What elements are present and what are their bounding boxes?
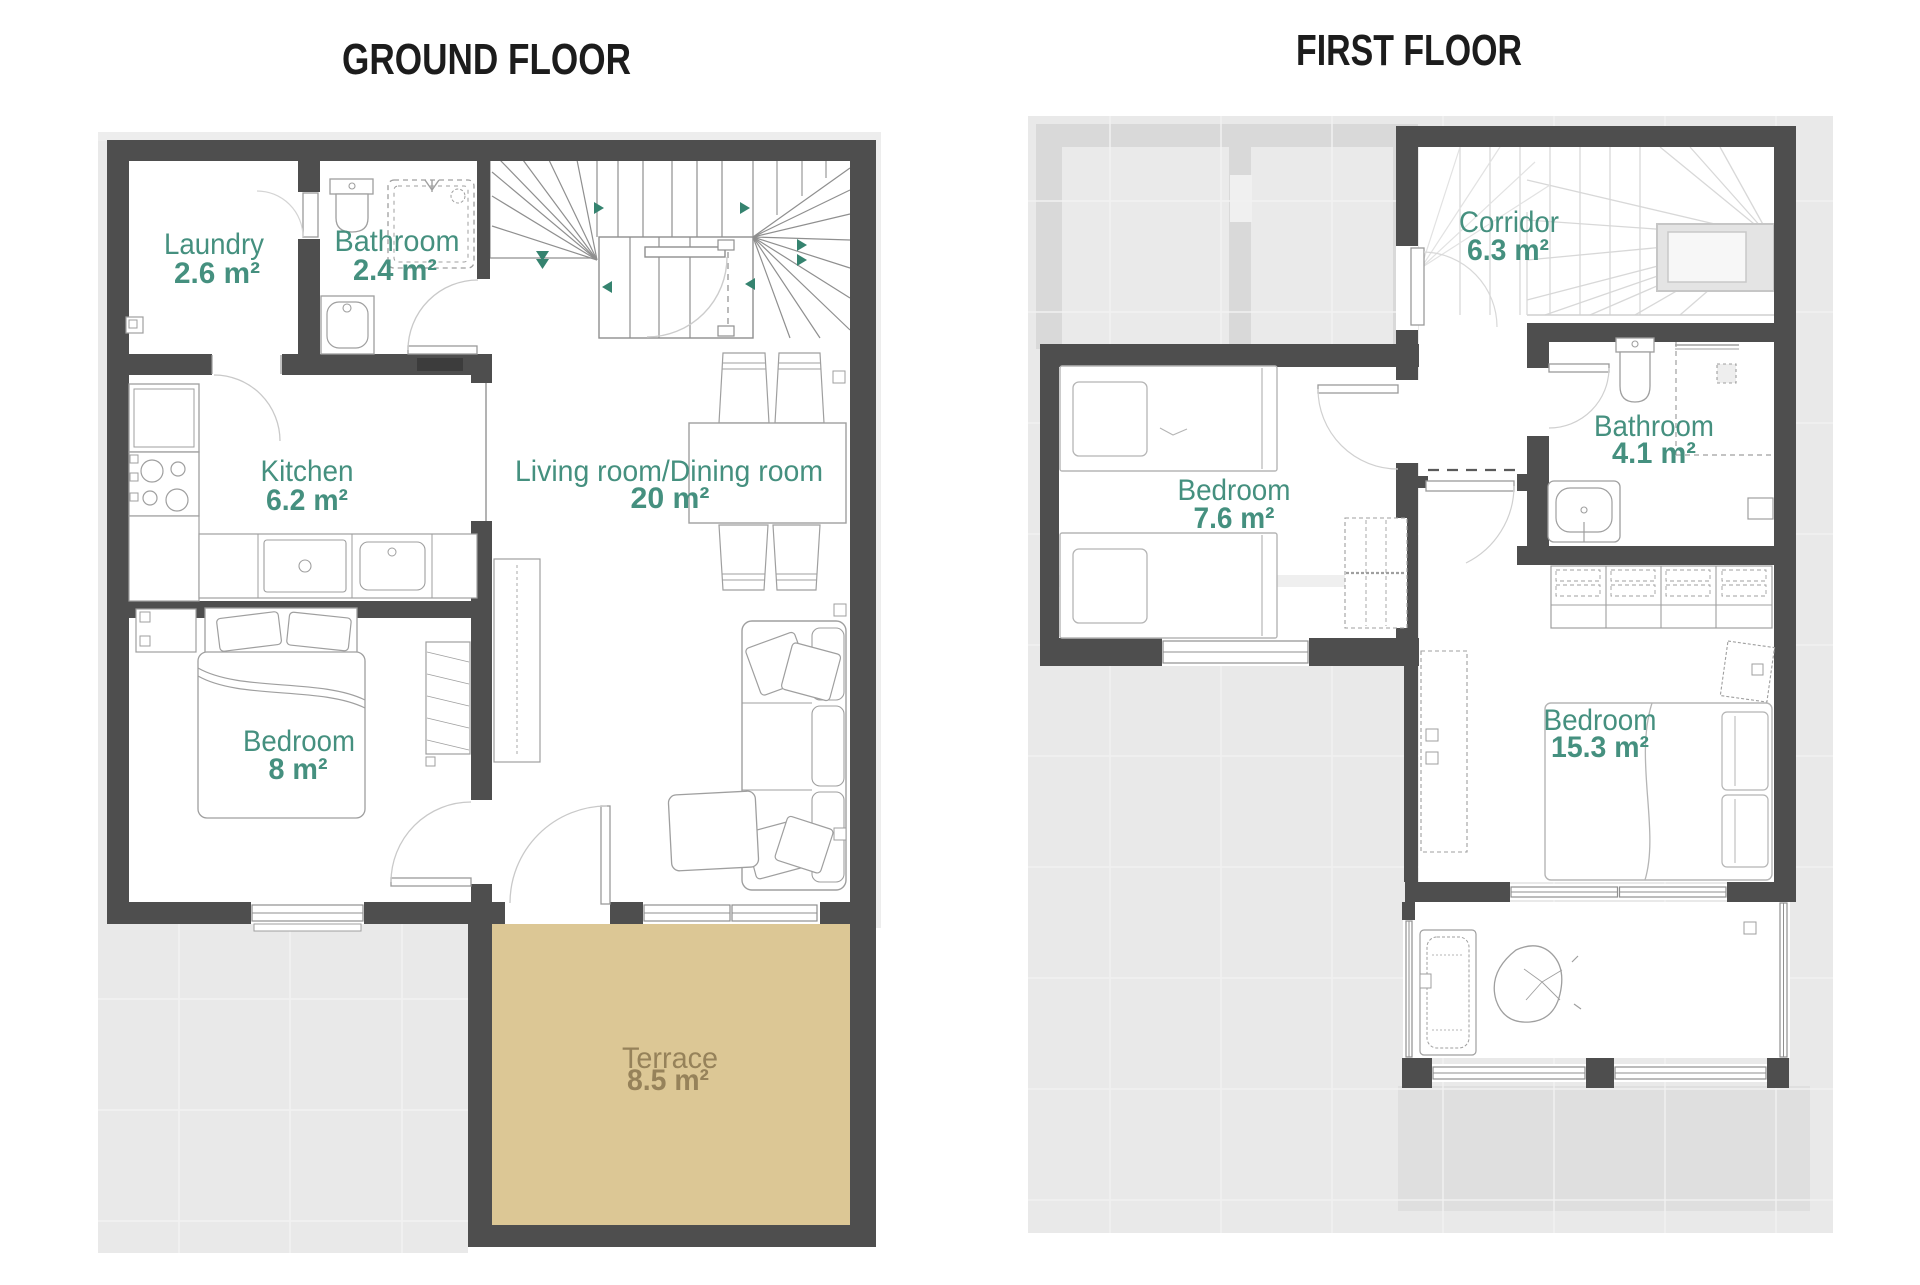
svg-text:2.6 m²: 2.6 m² <box>174 257 260 290</box>
svg-text:20 m²: 20 m² <box>631 482 710 515</box>
svg-text:8.5 m²: 8.5 m² <box>627 1064 709 1097</box>
svg-text:8 m²: 8 m² <box>269 753 328 786</box>
svg-text:6.3 m²: 6.3 m² <box>1467 234 1549 267</box>
svg-text:GROUND FLOOR: GROUND FLOOR <box>342 35 631 84</box>
svg-text:7.6 m²: 7.6 m² <box>1194 502 1275 535</box>
svg-text:4.1 m²: 4.1 m² <box>1612 437 1696 470</box>
svg-text:2.4 m²: 2.4 m² <box>353 254 437 287</box>
svg-text:FIRST FLOOR: FIRST FLOOR <box>1296 26 1522 75</box>
svg-text:15.3 m²: 15.3 m² <box>1551 731 1649 764</box>
svg-text:6.2 m²: 6.2 m² <box>266 484 348 517</box>
